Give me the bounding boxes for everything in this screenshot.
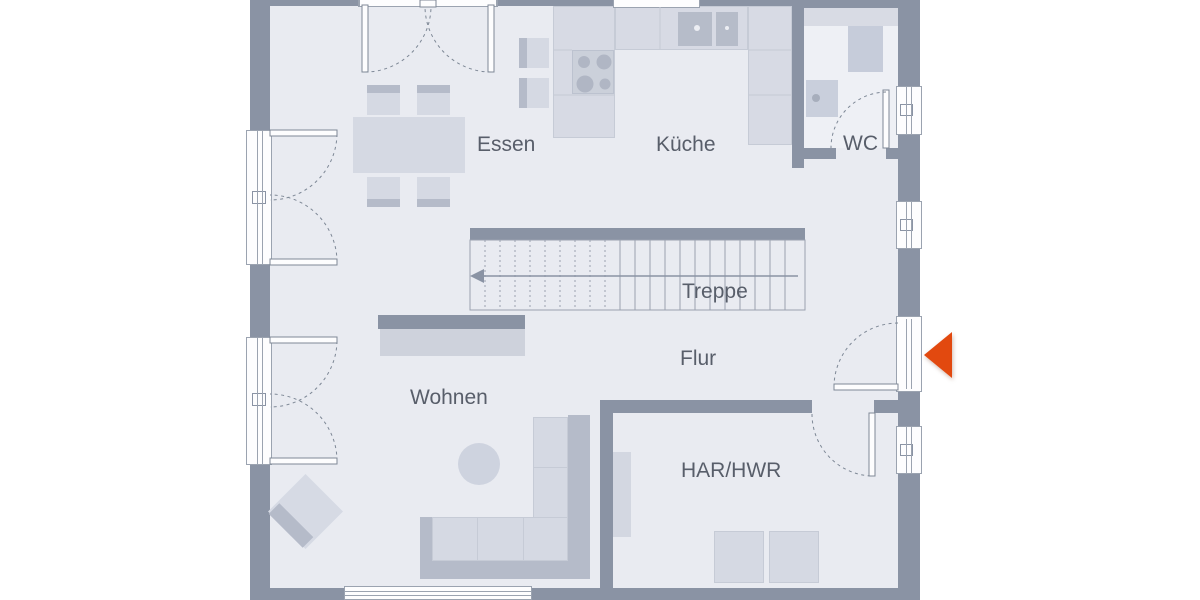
room-label-essen: Essen [477, 133, 535, 157]
stair-direction-arrow [470, 269, 798, 283]
plan-linework [0, 0, 1200, 600]
sink-faucet-dots [694, 25, 820, 102]
stair-treads [470, 240, 805, 310]
cooktop-burners [577, 55, 612, 93]
room-label-kueche: Küche [656, 133, 716, 157]
floor-plan: Essen Küche WC Treppe Flur Wohnen HAR/HW… [0, 0, 1200, 600]
room-label-treppe: Treppe [682, 280, 748, 304]
room-label-wohnen: Wohnen [410, 386, 488, 410]
room-label-flur: Flur [680, 347, 716, 371]
door-leaves [270, 0, 898, 476]
entrance-arrow-icon [924, 332, 952, 378]
room-label-har-hwr: HAR/HWR [681, 459, 781, 483]
room-label-wc: WC [843, 132, 878, 156]
